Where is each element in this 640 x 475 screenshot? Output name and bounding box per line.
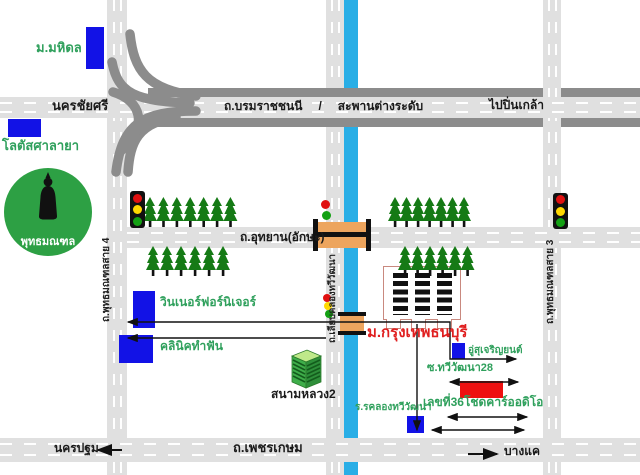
pine-tree-icon bbox=[146, 246, 160, 276]
pine-tree-icon bbox=[216, 246, 230, 276]
mahidol-label: ม.มหิดล bbox=[36, 41, 82, 55]
sanam-luang-building-icon bbox=[283, 349, 327, 389]
liap-khlong-vertical-label: ถ.เลียบคลองทวีวัฒนา bbox=[325, 250, 340, 348]
phetkasem-label: ถ.เพชรเกษม bbox=[233, 441, 303, 455]
address-label: เลขที่36โชดคาร์ออดิโอ bbox=[423, 396, 543, 409]
pine-tree-icon bbox=[461, 246, 475, 276]
pine-tree-icon bbox=[400, 197, 414, 227]
slash-label: / bbox=[318, 100, 321, 113]
to-pin-klao-label: ไปปิ่นเกล้า bbox=[489, 99, 544, 112]
pine-tree-icon bbox=[183, 197, 197, 227]
pine-tree-icon bbox=[210, 197, 224, 227]
pine-tree-icon bbox=[411, 197, 425, 227]
school-label: ร.รคลองทวีวัฒนา bbox=[355, 402, 432, 413]
mahidol-building-block bbox=[86, 27, 104, 69]
highway-edge-bottom-west bbox=[148, 118, 543, 127]
to-bang-khae-label: บางแค bbox=[504, 445, 540, 458]
pine-tree-icon bbox=[188, 246, 202, 276]
pine-tree-icon bbox=[446, 197, 460, 227]
pine-tree-icon bbox=[170, 197, 184, 227]
lotus-salaya-label: โลตัสศาลายา bbox=[2, 139, 79, 153]
university-label: ม.กรุงเทพธนบุรี bbox=[367, 325, 467, 342]
soi-canal-bridge bbox=[338, 312, 366, 335]
highway-edge-top-east bbox=[561, 88, 640, 97]
map-canvas: พุทธมณฑล ม.มหิดล นครชัยศรี โลตัสศาลายา bbox=[0, 0, 640, 475]
mini-signal-green-icon-upper bbox=[322, 211, 331, 220]
pine-tree-icon bbox=[143, 197, 157, 227]
dental-clinic-label: คลินิคทำฟัน bbox=[160, 340, 223, 353]
pine-tree-icon bbox=[434, 197, 448, 227]
utthayan-label: ถ.อุทยาน(อักษะ) bbox=[240, 231, 325, 244]
to-nakhon-pathom-label: นครปฐม bbox=[54, 442, 99, 455]
soi-128-label: ซ.ทวีวัฒนา28 bbox=[427, 362, 493, 374]
highway-label: ถ.บรมราชชนนี / สะพานต่างระดับ bbox=[224, 100, 423, 113]
traffic-light-icon-utthayan-west bbox=[130, 191, 145, 228]
winner-building-block bbox=[133, 291, 155, 328]
pine-tree-icon bbox=[457, 197, 471, 227]
lotus-building-block bbox=[8, 119, 41, 137]
pine-tree-icon bbox=[160, 246, 174, 276]
pine-tree-icon bbox=[423, 197, 437, 227]
road-utthayan bbox=[127, 227, 640, 248]
highway-edge-bottom-east bbox=[561, 118, 640, 127]
traffic-light-icon-sai3 bbox=[553, 193, 568, 229]
buddha-statue-icon bbox=[29, 172, 67, 222]
pine-tree-icon bbox=[197, 197, 211, 227]
phutthamonthon-monument: พุทธมณฑล bbox=[4, 168, 92, 256]
pine-tree-icon bbox=[202, 246, 216, 276]
flyover-label: สะพานต่างระดับ bbox=[338, 100, 423, 113]
phutthamonthon-label: พุทธมณฑล bbox=[4, 236, 92, 248]
highway-edge-top-west bbox=[148, 88, 543, 97]
nakhon-chai-si-label: นครชัยศรี bbox=[52, 99, 108, 113]
garage-building-block bbox=[452, 343, 465, 359]
clinic-building-block bbox=[119, 335, 153, 363]
sai4-vertical-label: ถ.พุทธมณฑลสาย 4 bbox=[99, 233, 114, 327]
garage-label: อู่สุเจริญยนต์ bbox=[468, 345, 522, 356]
mini-signal-red-icon-upper bbox=[321, 200, 330, 209]
sai3-vertical-label: ถ.พุทธมณฑลสาย 3 bbox=[543, 232, 558, 332]
winner-furniture-label: วินเนอร์ฟอร์นิเจอร์ bbox=[160, 296, 256, 309]
pine-tree-icon bbox=[174, 246, 188, 276]
sanam-luang-label: สนามหลวง2 bbox=[271, 388, 336, 401]
pine-tree-icon bbox=[223, 197, 237, 227]
pine-tree-icon bbox=[156, 197, 170, 227]
school-building-block bbox=[407, 416, 424, 433]
university-building bbox=[383, 266, 461, 320]
borommaratchachonnani-label: ถ.บรมราชชนนี bbox=[224, 100, 302, 113]
interchange-ramp bbox=[130, 34, 196, 96]
pine-tree-icon bbox=[388, 197, 402, 227]
